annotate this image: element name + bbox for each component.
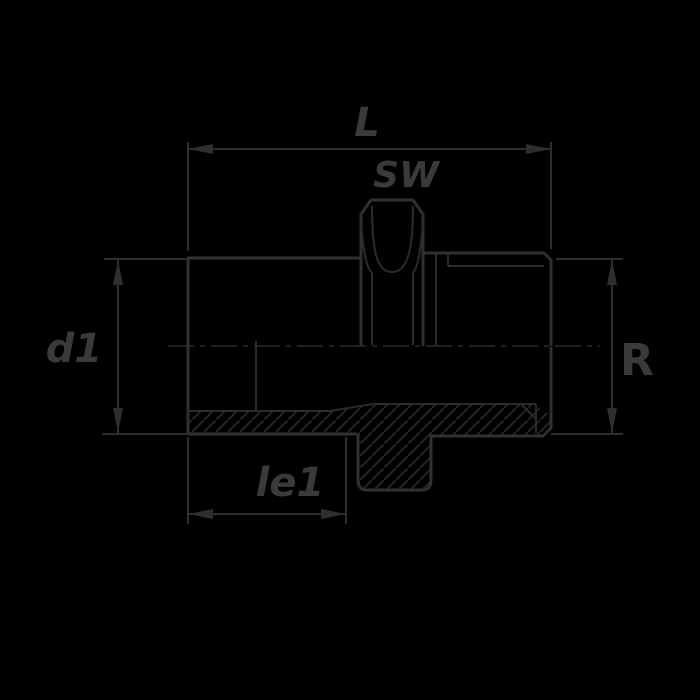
dimension-L	[188, 142, 551, 251]
drawing-canvas: L SW d1 R le1	[0, 0, 700, 700]
dim-label-inner-diameter: d1	[46, 329, 102, 369]
dim-label-wrench-size: SW	[373, 158, 439, 194]
section-hatch	[188, 404, 551, 490]
dim-label-thread-length: le1	[256, 463, 325, 503]
fitting-technical-drawing	[0, 0, 700, 700]
dim-label-length: L	[354, 103, 380, 143]
male-thread-lines	[448, 253, 544, 266]
hex-chamfer-arcs	[361, 206, 436, 345]
dim-label-thread-size: R	[620, 339, 654, 383]
